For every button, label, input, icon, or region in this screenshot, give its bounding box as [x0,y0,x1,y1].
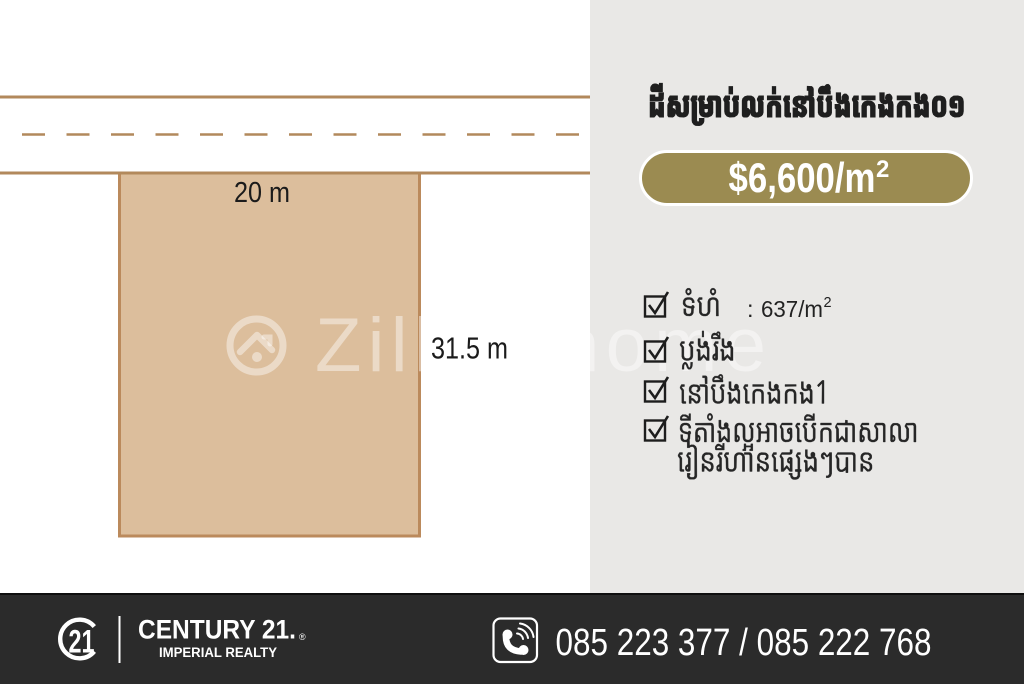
svg-text:20 m: 20 m [234,177,290,209]
svg-text::: : [747,296,754,322]
svg-text:IMPERIAL REALTY: IMPERIAL REALTY [159,645,277,660]
svg-text:637/m: 637/m [761,296,823,322]
svg-text:31.5 m: 31.5 m [431,331,508,366]
svg-text:085 223 377 / 085 222 768: 085 223 377 / 085 222 768 [556,622,932,664]
svg-text:2: 2 [824,295,832,311]
svg-text:21: 21 [69,624,95,660]
svg-text:2: 2 [876,156,889,183]
svg-text:$6,600/m: $6,600/m [729,154,876,201]
svg-text:CENTURY 21.: CENTURY 21. [138,615,296,645]
svg-text:®: ® [299,632,306,642]
